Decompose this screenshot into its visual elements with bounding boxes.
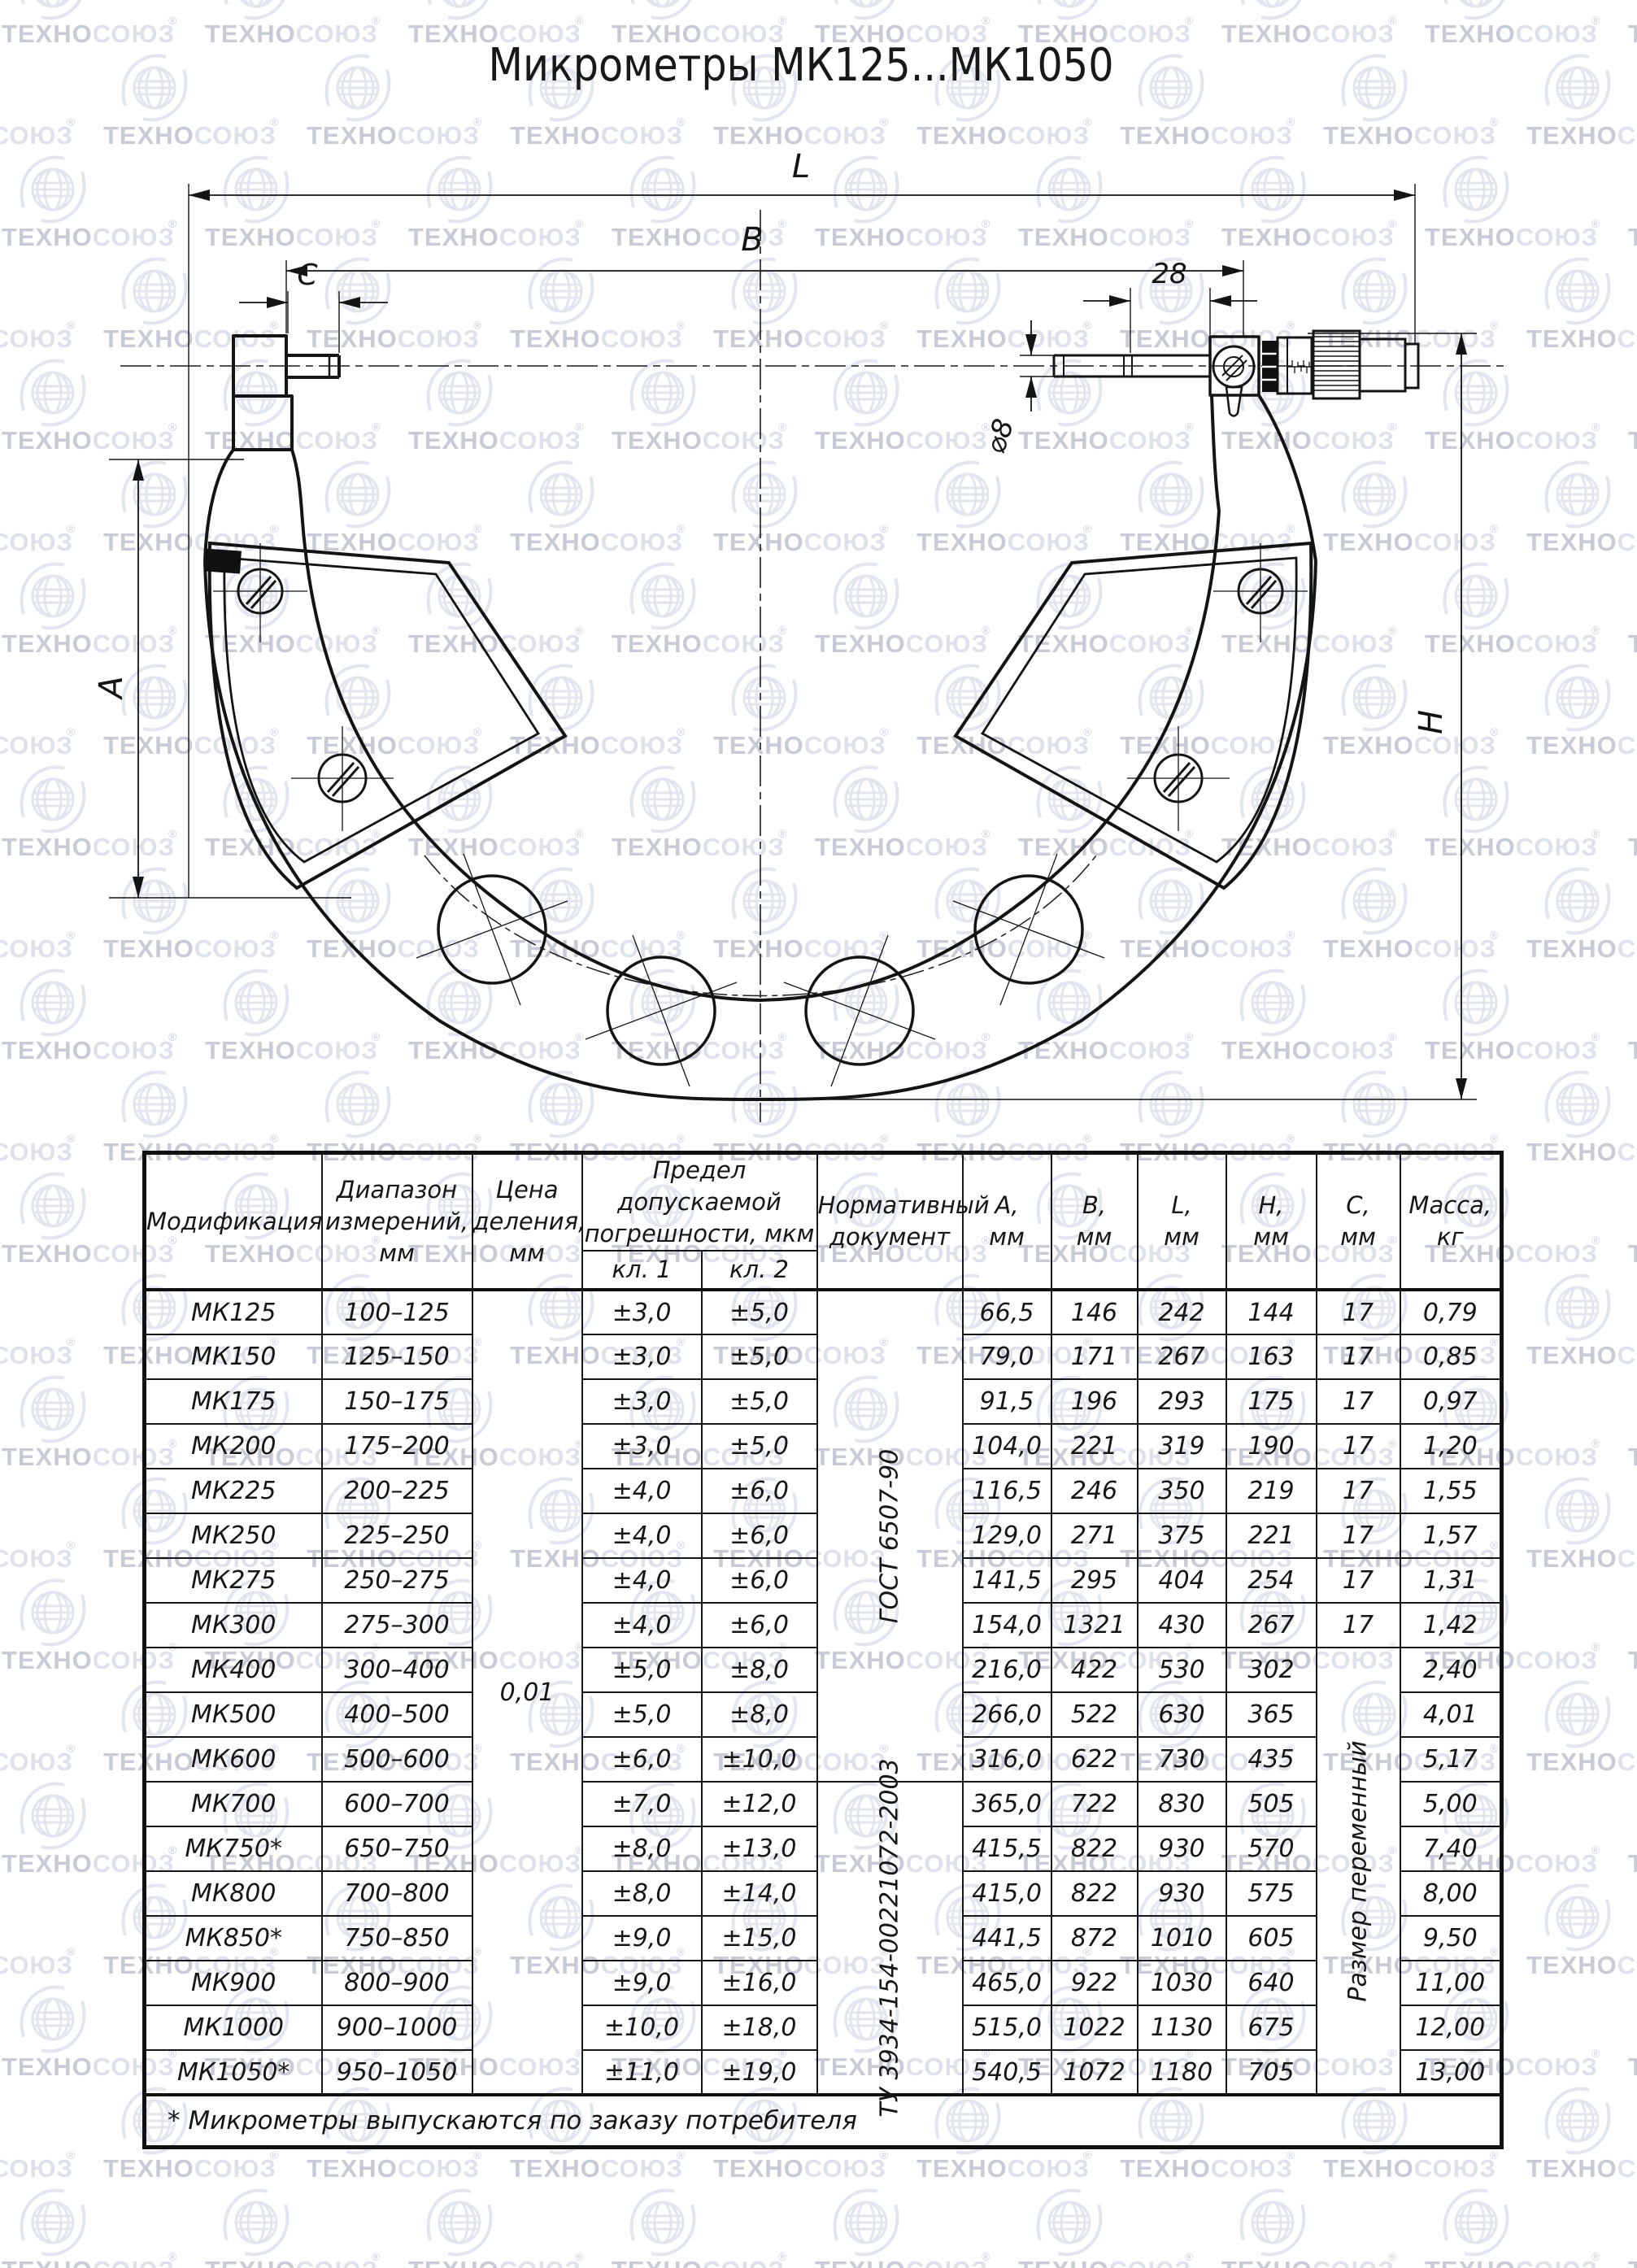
cell-l: 730 xyxy=(1138,1737,1226,1782)
header-division: Цена деления, мм xyxy=(472,1153,582,1291)
header-h: Н, мм xyxy=(1226,1153,1317,1291)
cell-range: 225–250 xyxy=(322,1513,472,1558)
cell-class2: ±8,0 xyxy=(702,1692,817,1737)
cell-c-variable: Размер переменный xyxy=(1317,1648,1400,2095)
cell-h: 190 xyxy=(1226,1424,1317,1469)
cell-model: МК125 xyxy=(145,1290,322,1334)
cell-c: 17 xyxy=(1317,1603,1400,1648)
cell-model: МК900 xyxy=(145,1961,322,2005)
cell-mass: 13,00 xyxy=(1400,2050,1502,2095)
cell-class1: ±3,0 xyxy=(582,1379,702,1424)
cell-doc-gost-label: ГОСТ 6507-90 xyxy=(876,1449,904,1623)
cell-class1: ±6,0 xyxy=(582,1737,702,1782)
cell-model: МК400 xyxy=(145,1648,322,1692)
cell-class1: ±10,0 xyxy=(582,2005,702,2050)
cell-class1: ±3,0 xyxy=(582,1290,702,1334)
cell-a: 465,0 xyxy=(963,1961,1051,2005)
cell-model: МК250 xyxy=(145,1513,322,1558)
cell-range: 950–1050 xyxy=(322,2050,472,2095)
cell-b: 221 xyxy=(1051,1424,1138,1469)
cell-class1: ±3,0 xyxy=(582,1424,702,1469)
cell-a: 415,0 xyxy=(963,1871,1051,1916)
cell-mass: 5,00 xyxy=(1400,1782,1502,1826)
cell-a: 540,5 xyxy=(963,2050,1051,2095)
cell-range: 800–900 xyxy=(322,1961,472,2005)
cell-c: 17 xyxy=(1317,1469,1400,1513)
cell-range: 900–1000 xyxy=(322,2005,472,2050)
cell-class1: ±8,0 xyxy=(582,1871,702,1916)
cell-class1: ±7,0 xyxy=(582,1782,702,1826)
cell-a: 116,5 xyxy=(963,1469,1051,1513)
cell-a: 129,0 xyxy=(963,1513,1051,1558)
cell-class2: ±6,0 xyxy=(702,1469,817,1513)
dimension-C-label: C xyxy=(297,259,318,292)
cell-class2: ±5,0 xyxy=(702,1379,817,1424)
cell-b: 1072 xyxy=(1051,2050,1138,2095)
cell-range: 700–800 xyxy=(322,1871,472,1916)
cell-mass: 0,79 xyxy=(1400,1290,1502,1334)
cell-mass: 1,57 xyxy=(1400,1513,1502,1558)
cell-h: 302 xyxy=(1226,1648,1317,1692)
cell-class1: ±3,0 xyxy=(582,1334,702,1379)
cell-class1: ±4,0 xyxy=(582,1513,702,1558)
cell-class2: ±12,0 xyxy=(702,1782,817,1826)
cell-l: 319 xyxy=(1138,1424,1226,1469)
cell-model: МК1050* xyxy=(145,2050,322,2095)
cell-l: 830 xyxy=(1138,1782,1226,1826)
cell-mass: 2,40 xyxy=(1400,1648,1502,1692)
dimension-B-label: B xyxy=(741,221,763,259)
header-document: Нормативный документ xyxy=(817,1153,963,1291)
dimension-lines xyxy=(109,184,1477,1099)
cell-l: 1180 xyxy=(1138,2050,1226,2095)
cell-b: 1321 xyxy=(1051,1603,1138,1648)
spindle-assembly xyxy=(1054,331,1418,416)
cell-a: 316,0 xyxy=(963,1737,1051,1782)
cell-a: 441,5 xyxy=(963,1916,1051,1961)
dimension-28-label: 28 xyxy=(1152,258,1186,290)
cell-h: 705 xyxy=(1226,2050,1317,2095)
cell-a: 79,0 xyxy=(963,1334,1051,1379)
cell-model: МК1000 xyxy=(145,2005,322,2050)
cell-class1: ±4,0 xyxy=(582,1469,702,1513)
cell-range: 125–150 xyxy=(322,1334,472,1379)
cell-h: 254 xyxy=(1226,1558,1317,1603)
cell-h: 144 xyxy=(1226,1290,1317,1334)
cell-mass: 1,31 xyxy=(1400,1558,1502,1603)
cell-b: 822 xyxy=(1051,1871,1138,1916)
cell-h: 570 xyxy=(1226,1826,1317,1871)
cell-range: 500–600 xyxy=(322,1737,472,1782)
cell-model: МК300 xyxy=(145,1603,322,1648)
cell-range: 150–175 xyxy=(322,1379,472,1424)
cell-class2: ±5,0 xyxy=(702,1334,817,1379)
cell-h: 505 xyxy=(1226,1782,1317,1826)
header-class2: кл. 2 xyxy=(702,1251,817,1290)
cell-model: МК700 xyxy=(145,1782,322,1826)
cell-class2: ±10,0 xyxy=(702,1737,817,1782)
cell-model: МК600 xyxy=(145,1737,322,1782)
cell-class2: ±8,0 xyxy=(702,1648,817,1692)
cell-l: 1010 xyxy=(1138,1916,1226,1961)
cell-h: 605 xyxy=(1226,1916,1317,1961)
cell-c: 17 xyxy=(1317,1558,1400,1603)
cell-mass: 1,20 xyxy=(1400,1424,1502,1469)
cell-class1: ±9,0 xyxy=(582,1916,702,1961)
cell-mass: 1,42 xyxy=(1400,1603,1502,1648)
dimension-A-label: A xyxy=(93,676,130,700)
cell-h: 575 xyxy=(1226,1871,1317,1916)
cell-a: 216,0 xyxy=(963,1648,1051,1692)
cell-l: 293 xyxy=(1138,1379,1226,1424)
header-l: L, мм xyxy=(1138,1153,1226,1291)
cell-model: МК800 xyxy=(145,1871,322,1916)
cell-mass: 9,50 xyxy=(1400,1916,1502,1961)
header-c: С, мм xyxy=(1317,1153,1400,1291)
cell-class2: ±15,0 xyxy=(702,1916,817,1961)
cell-c-variable-label: Размер переменный xyxy=(1344,1740,1373,2001)
cell-class1: ±9,0 xyxy=(582,1961,702,2005)
cell-class1: ±5,0 xyxy=(582,1692,702,1737)
cell-h: 219 xyxy=(1226,1469,1317,1513)
cell-h: 163 xyxy=(1226,1334,1317,1379)
header-mass: Масса, кг xyxy=(1400,1153,1502,1291)
cell-range: 750–850 xyxy=(322,1916,472,1961)
cell-a: 515,0 xyxy=(963,2005,1051,2050)
cell-mass: 5,17 xyxy=(1400,1737,1502,1782)
header-modification: Модификация xyxy=(145,1153,322,1291)
table-body: МК125100–1250,01±3,0±5,0ГОСТ 6507-9066,5… xyxy=(145,1290,1502,2095)
cell-range: 175–200 xyxy=(322,1424,472,1469)
cell-model: МК175 xyxy=(145,1379,322,1424)
cell-range: 650–750 xyxy=(322,1826,472,1871)
cell-model: МК200 xyxy=(145,1424,322,1469)
cell-class2: ±16,0 xyxy=(702,1961,817,2005)
cell-mass: 7,40 xyxy=(1400,1826,1502,1871)
cell-b: 171 xyxy=(1051,1334,1138,1379)
dimension-dia8-label: ⌀8 xyxy=(979,415,1021,457)
cell-mass: 12,00 xyxy=(1400,2005,1502,2050)
cell-b: 922 xyxy=(1051,1961,1138,2005)
cell-h: 175 xyxy=(1226,1379,1317,1424)
cell-class2: ±18,0 xyxy=(702,2005,817,2050)
cell-a: 104,0 xyxy=(963,1424,1051,1469)
cell-b: 422 xyxy=(1051,1648,1138,1692)
cell-a: 266,0 xyxy=(963,1692,1051,1737)
cell-mass: 0,85 xyxy=(1400,1334,1502,1379)
cell-l: 375 xyxy=(1138,1513,1226,1558)
cell-class1: ±8,0 xyxy=(582,1826,702,1871)
cell-b: 271 xyxy=(1051,1513,1138,1558)
cell-range: 600–700 xyxy=(322,1782,472,1826)
cell-class1: ±11,0 xyxy=(582,2050,702,2095)
cell-a: 91,5 xyxy=(963,1379,1051,1424)
cell-h: 435 xyxy=(1226,1737,1317,1782)
header-a: А, мм xyxy=(963,1153,1051,1291)
cell-model: МК225 xyxy=(145,1469,322,1513)
cell-b: 872 xyxy=(1051,1916,1138,1961)
cell-doc-gost: ГОСТ 6507-90 xyxy=(817,1290,963,1782)
cell-b: 822 xyxy=(1051,1826,1138,1871)
cell-model: МК750* xyxy=(145,1826,322,1871)
cell-h: 221 xyxy=(1226,1513,1317,1558)
page-title: Микрометры МК125...МК1050 xyxy=(488,39,1113,92)
insulating-pads xyxy=(204,543,1311,888)
cell-l: 242 xyxy=(1138,1290,1226,1334)
cell-b: 196 xyxy=(1051,1379,1138,1424)
cell-a: 154,0 xyxy=(963,1603,1051,1648)
cell-l: 1030 xyxy=(1138,1961,1226,2005)
table-row: МК125100–1250,01±3,0±5,0ГОСТ 6507-9066,5… xyxy=(145,1290,1502,1334)
cell-b: 1022 xyxy=(1051,2005,1138,2050)
cell-b: 246 xyxy=(1051,1469,1138,1513)
cell-range: 275–300 xyxy=(322,1603,472,1648)
cell-model: МК150 xyxy=(145,1334,322,1379)
cell-doc-tu-label: ТУ 3934-154-00221072-2003 xyxy=(876,1759,904,2118)
cell-class2: ±5,0 xyxy=(702,1290,817,1334)
cell-model: МК500 xyxy=(145,1692,322,1737)
cell-h: 365 xyxy=(1226,1692,1317,1737)
cell-l: 930 xyxy=(1138,1871,1226,1916)
cell-class2: ±13,0 xyxy=(702,1826,817,1871)
cell-a: 66,5 xyxy=(963,1290,1051,1334)
cell-a: 415,5 xyxy=(963,1826,1051,1871)
cell-range: 100–125 xyxy=(322,1290,472,1334)
cell-h: 675 xyxy=(1226,2005,1317,2050)
cell-l: 350 xyxy=(1138,1469,1226,1513)
cell-l: 267 xyxy=(1138,1334,1226,1379)
header-class1: кл. 1 xyxy=(582,1251,702,1290)
cell-model: МК275 xyxy=(145,1558,322,1603)
cell-division-merged: 0,01 xyxy=(472,1290,582,2095)
cell-c: 17 xyxy=(1317,1424,1400,1469)
cell-mass: 1,55 xyxy=(1400,1469,1502,1513)
cell-c: 17 xyxy=(1317,1290,1400,1334)
cell-c: 17 xyxy=(1317,1379,1400,1424)
cell-a: 365,0 xyxy=(963,1782,1051,1826)
cell-c: 17 xyxy=(1317,1513,1400,1558)
cell-mass: 8,00 xyxy=(1400,1871,1502,1916)
cell-mass: 4,01 xyxy=(1400,1692,1502,1737)
cell-b: 295 xyxy=(1051,1558,1138,1603)
cell-doc-tu: ТУ 3934-154-00221072-2003 xyxy=(817,1782,963,2095)
table-row: МК700600–700±7,0±12,0ТУ 3934-154-0022107… xyxy=(145,1782,1502,1826)
cell-c: 17 xyxy=(1317,1334,1400,1379)
cell-range: 200–225 xyxy=(322,1469,472,1513)
cell-b: 522 xyxy=(1051,1692,1138,1737)
cell-mass: 0,97 xyxy=(1400,1379,1502,1424)
table-footnote: * Микрометры выпускаются по заказу потре… xyxy=(145,2095,1502,2148)
cell-class2: ±6,0 xyxy=(702,1603,817,1648)
dimension-H-label: H xyxy=(1413,710,1450,734)
header-range: Диапазон измерений, мм xyxy=(322,1153,472,1291)
cell-b: 146 xyxy=(1051,1290,1138,1334)
cell-b: 622 xyxy=(1051,1737,1138,1782)
cell-l: 530 xyxy=(1138,1648,1226,1692)
header-tolerance: Предел допускаемой погрешности, мкм xyxy=(582,1153,817,1252)
micrometer-drawing: Микрометры МК125...МК1050 xyxy=(0,0,1637,1151)
cell-l: 404 xyxy=(1138,1558,1226,1603)
cell-h: 640 xyxy=(1226,1961,1317,2005)
spec-table: Модификация Диапазон измерений, мм Цена … xyxy=(142,1151,1504,2149)
cell-class2: ±14,0 xyxy=(702,1871,817,1916)
dimension-L-label: L xyxy=(792,148,810,185)
cell-class1: ±4,0 xyxy=(582,1558,702,1603)
cell-class2: ±6,0 xyxy=(702,1558,817,1603)
cell-range: 300–400 xyxy=(322,1648,472,1692)
cell-class2: ±6,0 xyxy=(702,1513,817,1558)
cell-l: 630 xyxy=(1138,1692,1226,1737)
cell-class2: ±5,0 xyxy=(702,1424,817,1469)
header-b: В, мм xyxy=(1051,1153,1138,1291)
cell-class2: ±19,0 xyxy=(702,2050,817,2095)
cell-mass: 11,00 xyxy=(1400,1961,1502,2005)
cell-class1: ±5,0 xyxy=(582,1648,702,1692)
cell-a: 141,5 xyxy=(963,1558,1051,1603)
cell-range: 250–275 xyxy=(322,1558,472,1603)
cell-range: 400–500 xyxy=(322,1692,472,1737)
cell-model: МК850* xyxy=(145,1916,322,1961)
cell-class1: ±4,0 xyxy=(582,1603,702,1648)
cell-h: 267 xyxy=(1226,1603,1317,1648)
cell-l: 1130 xyxy=(1138,2005,1226,2050)
cell-l: 930 xyxy=(1138,1826,1226,1871)
cell-b: 722 xyxy=(1051,1782,1138,1826)
cell-l: 430 xyxy=(1138,1603,1226,1648)
